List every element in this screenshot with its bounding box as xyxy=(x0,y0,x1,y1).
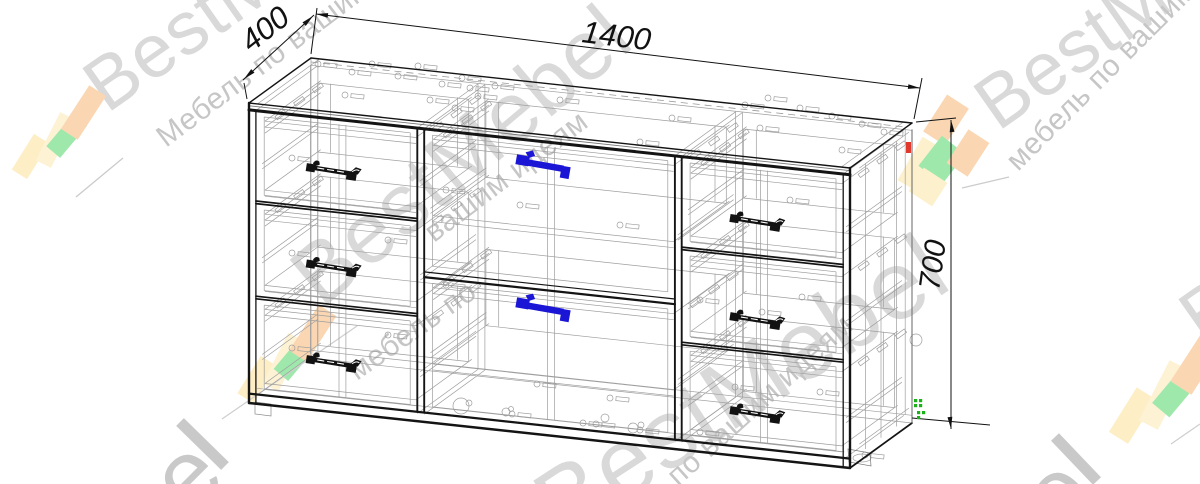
svg-text:700: 700 xyxy=(913,238,953,292)
